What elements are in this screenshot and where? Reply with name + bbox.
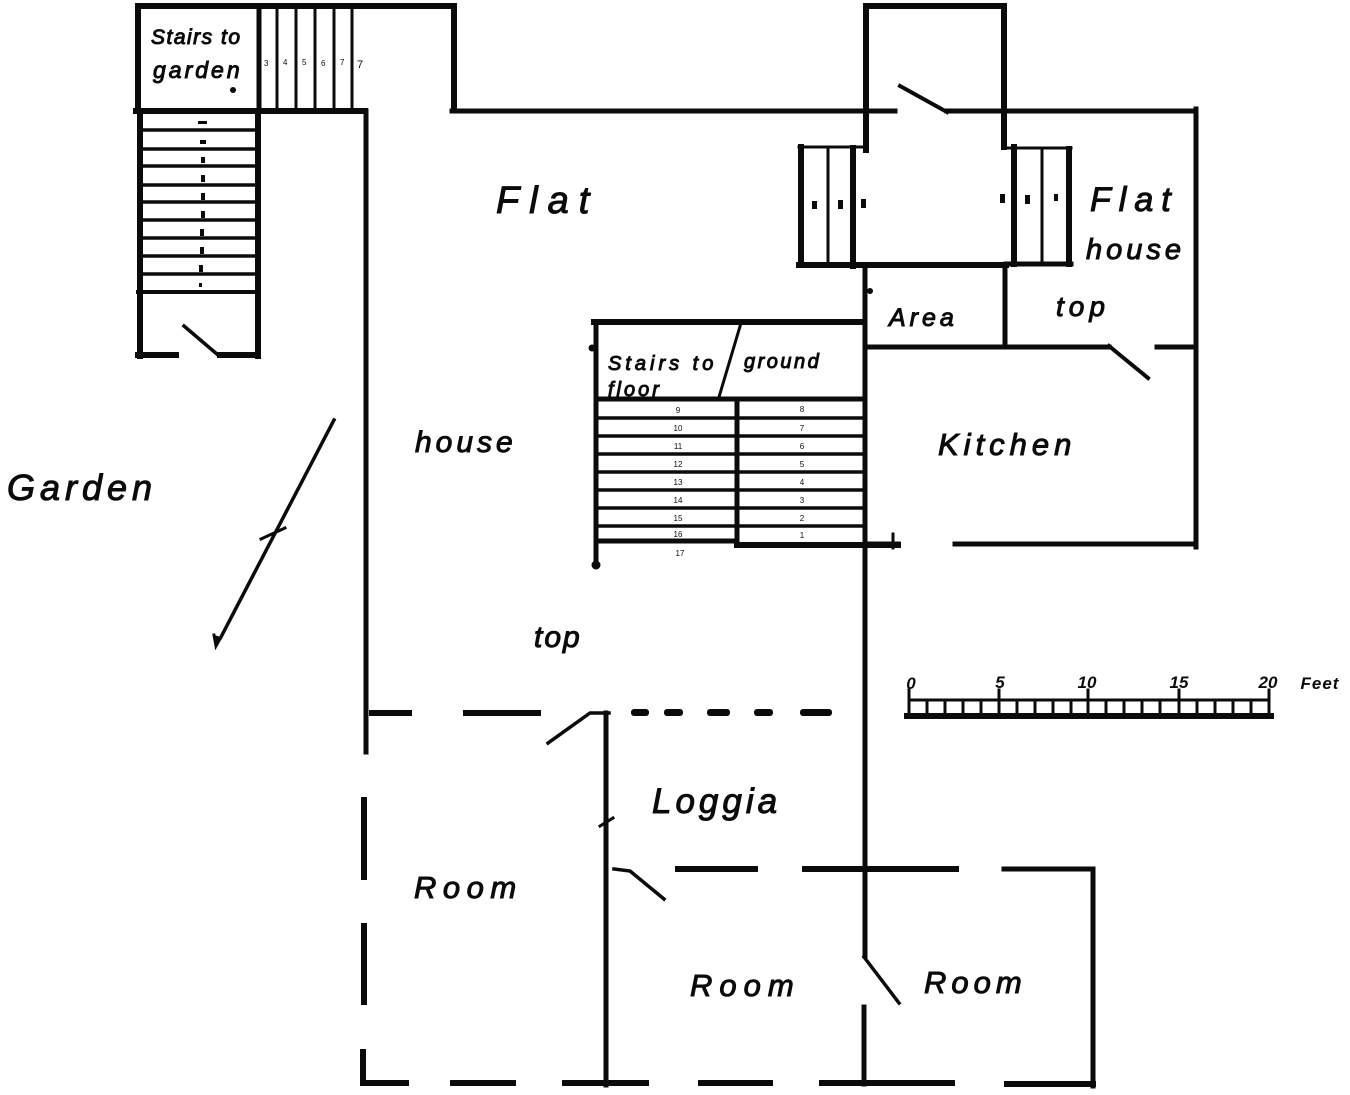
svg-text:Stairs to: Stairs to: [151, 26, 242, 49]
svg-text:Kitchen: Kitchen: [938, 427, 1076, 462]
svg-text:Flat: Flat: [1090, 181, 1179, 219]
svg-text:13: 13: [674, 478, 683, 487]
svg-text:10: 10: [674, 424, 683, 433]
svg-text:Room: Room: [690, 968, 801, 1003]
svg-text:Loggia: Loggia: [652, 782, 781, 821]
svg-text:11: 11: [674, 442, 683, 451]
svg-text:ground: ground: [744, 351, 821, 373]
svg-text:20: 20: [1258, 673, 1278, 692]
svg-text:16: 16: [674, 530, 683, 539]
svg-text:7: 7: [800, 424, 805, 433]
svg-text:10: 10: [1078, 673, 1097, 692]
svg-text:Area: Area: [887, 304, 958, 332]
svg-text:6: 6: [800, 442, 805, 451]
svg-text:Garden: Garden: [7, 467, 157, 508]
svg-text:9: 9: [676, 406, 681, 415]
svg-text:Feet: Feet: [1301, 674, 1340, 693]
svg-text:15: 15: [674, 514, 683, 523]
svg-text:12: 12: [674, 460, 683, 469]
svg-text:3: 3: [264, 59, 269, 68]
svg-text:2: 2: [800, 514, 805, 523]
svg-text:top: top: [1056, 291, 1110, 322]
svg-text:Stairs to: Stairs to: [608, 353, 717, 375]
svg-text:5: 5: [995, 673, 1005, 692]
svg-text:top: top: [534, 621, 582, 654]
svg-text:house: house: [415, 426, 517, 459]
svg-text:house: house: [1086, 234, 1185, 266]
svg-text:4: 4: [800, 478, 805, 487]
svg-text:3: 3: [800, 496, 805, 505]
svg-text:4: 4: [283, 58, 288, 67]
svg-text:Room: Room: [414, 870, 523, 905]
svg-text:14: 14: [674, 496, 683, 505]
svg-text:6: 6: [321, 59, 326, 68]
svg-text:15: 15: [1170, 673, 1189, 692]
svg-text:5: 5: [302, 58, 307, 67]
svg-text:8: 8: [800, 405, 805, 414]
svg-text:0: 0: [906, 674, 916, 693]
svg-text:17: 17: [676, 549, 685, 558]
svg-text:Room: Room: [924, 965, 1027, 1000]
svg-text:7: 7: [340, 58, 345, 67]
svg-text:7: 7: [357, 59, 363, 71]
svg-text:Flat: Flat: [496, 180, 599, 222]
svg-text:1: 1: [800, 531, 805, 540]
svg-text:garden: garden: [153, 57, 243, 83]
svg-text:5: 5: [800, 460, 805, 469]
